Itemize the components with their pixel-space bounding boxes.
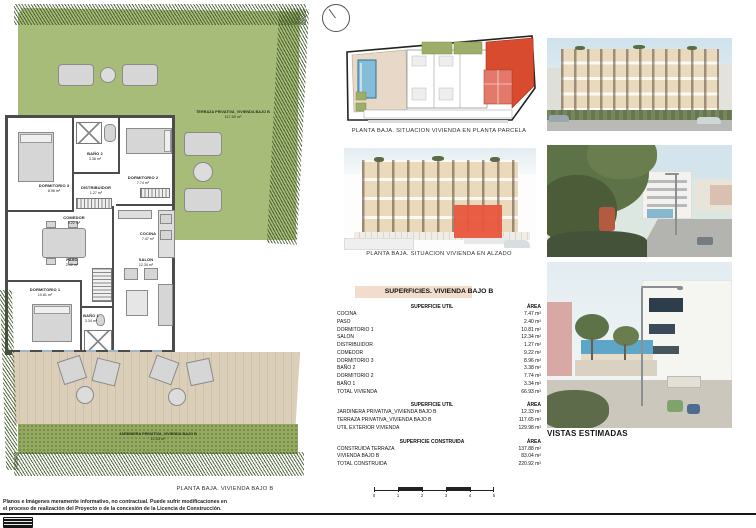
disclaimer-line-1: Planos e Imágenes meramente informativo,… (3, 499, 227, 506)
table-row: TERRAZA PRIVATIVA_VIVIENDA BAJO B117.65 … (337, 417, 541, 425)
table-section-construida: SUPERFICIE CONSTRUIDAÁREA CONSTRUIDA TER… (337, 438, 541, 469)
table-section-util: SUPERFICIE UTILÁREA COCINA7.47 m² PASO2.… (337, 303, 541, 396)
unit-highlight-overlay (454, 205, 502, 238)
jardinera-strip: JARDINERA PRIVATIVA_VIVIENDA BAJO B 12.3… (18, 424, 298, 454)
closet (92, 268, 112, 302)
tree-border-top (14, 4, 306, 25)
kitchen-appliance (160, 214, 172, 224)
garden-table (100, 67, 116, 83)
table-row: CONSTRUIDA TERRAZA137.88 m² (337, 446, 541, 454)
table-title: SUPERFICIES. VIVIENDA BAJO B (337, 286, 541, 298)
surfaces-table: SUPERFICIES. VIVIENDA BAJO B SUPERFICIE … (337, 286, 541, 469)
kitchen-island (118, 210, 152, 219)
shower (76, 122, 102, 144)
table-row-total: TOTAL VIVIENDA66.93 m² (337, 389, 541, 397)
dining-table (42, 228, 86, 258)
terrace-table (76, 386, 94, 404)
wardrobe (76, 198, 112, 209)
armchair (144, 268, 158, 280)
room-label: COCINA7.47 m² (130, 232, 166, 241)
garden-lounger (184, 188, 222, 212)
north-arrow-icon (322, 4, 350, 32)
table-row: SALON12.34 m² (337, 334, 541, 342)
photo-street-view (547, 145, 732, 257)
views-title: VISTAS ESTIMADAS (547, 429, 628, 438)
plan-sheet: TERRAZA PRIVATIVA_VIVIENDA BAJO B 117.65… (0, 0, 756, 528)
garden-lounger (184, 132, 222, 156)
apartment-floor-plan: DORMITORIO 38.96 m² BAÑO 23.38 m² DORMIT… (5, 115, 175, 355)
table-row: DISTRIBUIDOR1.27 m² (337, 342, 541, 350)
logo-mark (3, 517, 33, 528)
elevation-view (344, 148, 536, 250)
garden-lounger (58, 64, 94, 86)
table-row: COMEDOR9.22 m² (337, 350, 541, 358)
room-label: DORMITORIO 110.81 m² (20, 288, 70, 297)
garden-lounger (122, 64, 158, 86)
room-label: DORMITORIO 38.96 m² (34, 184, 74, 193)
photo-building-render (547, 38, 732, 131)
table-section-util-exterior: SUPERFICIE UTILÁREA JARDINERA PRIVATIVA_… (337, 401, 541, 432)
wardrobe (140, 188, 170, 198)
site-plan-caption: PLANTA BAJA. SITUACION VIVIENDA EN PLANT… (330, 128, 548, 134)
floor-plan-caption: PLANTA BAJA. VIVIENDA BAJO B (115, 486, 335, 492)
disclaimer-line-2: el proceso de realización del Proyecto o… (3, 506, 222, 513)
table-row: PASO2.40 m² (337, 319, 541, 327)
terrace-chair (186, 358, 214, 386)
site-plan (344, 30, 538, 126)
table-row: DORMITORIO 38.96 m² (337, 358, 541, 366)
room-label: BAÑO 13.34 m² (72, 314, 110, 323)
terraza-privativa-label: TERRAZA PRIVATIVA_VIVIENDA BAJO B 117.65… (188, 110, 278, 119)
table-row: VIVIENDA BAJO B83.04 m² (337, 453, 541, 461)
terrace-table (168, 388, 186, 406)
elevation-caption: PLANTA BAJA. SITUACION VIVIENDA EN ALZAD… (330, 251, 548, 257)
room-label: DORMITORIO 27.74 m² (120, 176, 166, 185)
coffee-table (126, 290, 148, 316)
room-label: PASO2.40 m² (54, 258, 90, 267)
washbasin (104, 124, 116, 142)
table-row: BAÑO 23.38 m² (337, 365, 541, 373)
photo-sea-view (547, 262, 732, 428)
table-row: DORMITORIO 27.74 m² (337, 373, 541, 381)
tree-border-bottom (14, 452, 304, 476)
armchair (124, 268, 138, 280)
table-row: COCINA7.47 m² (337, 311, 541, 319)
table-row: JARDINERA PRIVATIVA_VIVIENDA BAJO B12.33… (337, 409, 541, 417)
table-row-total: TOTAL CONSTRUIDA220.92 m² (337, 461, 541, 469)
room-label: SALON12.34 m² (124, 258, 168, 267)
jardinera-label: JARDINERA PRIVATIVA_VIVIENDA BAJO B 12.3… (88, 432, 228, 441)
table-row: BAÑO 13.34 m² (337, 381, 541, 389)
graphic-scale-bar: 0 1 2 3 4 5 (374, 485, 494, 499)
room-label: COMEDOR9.22 m² (54, 216, 94, 225)
sofa (158, 284, 173, 326)
room-label: BAÑO 23.38 m² (78, 152, 112, 161)
table-row: DORMITORIO 110.81 m² (337, 327, 541, 335)
garden-table (193, 162, 213, 182)
room-label: DISTRIBUIDOR1.27 m² (76, 186, 116, 195)
table-row-total: UTIL EXTERIOR VIVIENDA129.98 m² (337, 425, 541, 433)
footer-divider (0, 513, 756, 515)
